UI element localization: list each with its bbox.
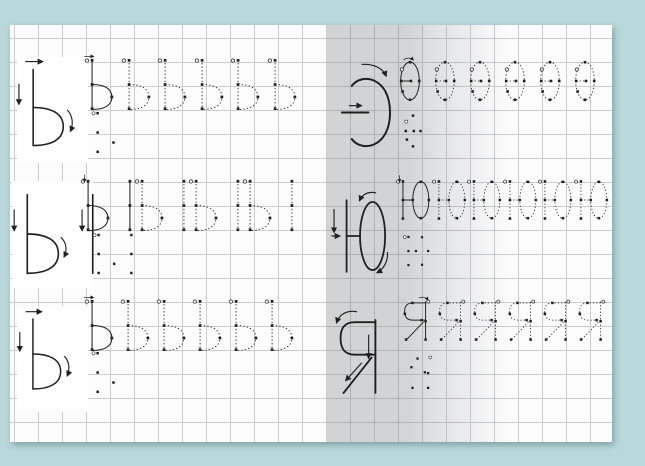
scanned-worksheet-photo xyxy=(0,0,645,466)
trace-letter-e xyxy=(539,61,561,101)
model-letter-e xyxy=(338,73,391,152)
trace-letter-e xyxy=(504,61,526,101)
trace-letter-e xyxy=(469,61,491,101)
trace-letter-ya xyxy=(578,301,603,341)
trace-letter-yery xyxy=(140,180,186,231)
trace-letter-yu xyxy=(579,180,608,220)
trace-letter-soft-sign xyxy=(163,59,188,110)
guide-dots-yery xyxy=(97,233,133,275)
trace-letter-soft-sign xyxy=(162,300,187,351)
worksheet-spread xyxy=(10,25,612,442)
model-letter-ya xyxy=(338,320,380,393)
guide-dots-yu xyxy=(407,231,429,271)
trace-letter-ya xyxy=(473,301,498,341)
trace-letter-soft-sign xyxy=(127,59,152,110)
trace-letter-yery-solid xyxy=(86,180,132,231)
trace-letter-yery xyxy=(248,180,294,231)
trace-letter-soft-sign-solid xyxy=(90,59,115,110)
trace-letter-yery xyxy=(194,180,240,231)
trace-letter-yu xyxy=(508,180,537,220)
trace-letter-e xyxy=(434,61,456,101)
trace-letter-ya xyxy=(543,301,568,341)
guide-dots-soft-sign xyxy=(96,352,116,393)
trace-letter-soft-sign xyxy=(200,59,225,110)
model-letter-soft-sign xyxy=(30,319,65,389)
trace-letter-yu xyxy=(543,180,572,220)
trace-letter-yu xyxy=(472,180,501,220)
model-letter-soft-sign xyxy=(30,69,68,146)
trace-letter-soft-sign xyxy=(198,300,223,351)
trace-letter-soft-sign-solid xyxy=(90,300,115,351)
trace-letter-e-solid xyxy=(399,61,421,101)
trace-letter-soft-sign xyxy=(273,59,298,110)
trace-letter-ya-solid xyxy=(403,301,428,341)
trace-letter-e xyxy=(574,61,596,101)
guide-dots-soft-sign xyxy=(96,112,116,153)
guide-dots-ya xyxy=(410,355,430,391)
trace-letter-soft-sign xyxy=(270,300,295,351)
guide-dots-e xyxy=(404,113,422,149)
trace-letter-yu-solid xyxy=(401,180,430,220)
model-letter-yu xyxy=(343,200,386,272)
trace-letter-soft-sign xyxy=(126,300,151,351)
trace-letter-soft-sign xyxy=(236,59,261,110)
trace-letter-yu xyxy=(437,180,466,220)
trace-letter-soft-sign xyxy=(234,300,259,351)
trace-letter-ya xyxy=(438,301,463,341)
trace-letter-ya xyxy=(508,301,533,341)
